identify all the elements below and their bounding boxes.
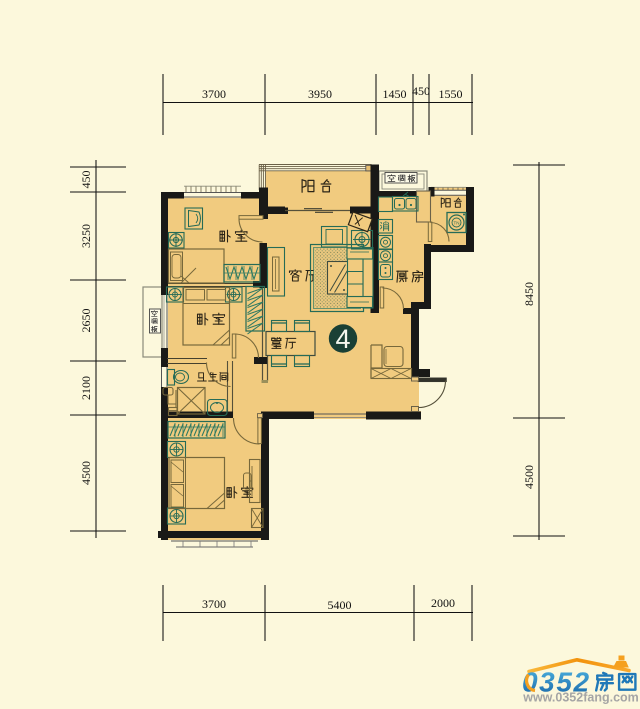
svg-text:3250: 3250 [79, 224, 93, 248]
svg-text:3700: 3700 [202, 87, 226, 101]
svg-text:2000: 2000 [431, 596, 455, 610]
svg-text:1550: 1550 [439, 87, 463, 101]
svg-text:4: 4 [335, 324, 350, 354]
svg-text:4500: 4500 [79, 461, 93, 485]
svg-text:1450: 1450 [383, 87, 407, 101]
svg-text:2650: 2650 [79, 309, 93, 333]
svg-text:2100: 2100 [79, 376, 93, 400]
svg-text:www.0352fang.com: www.0352fang.com [522, 691, 639, 705]
svg-text:3950: 3950 [308, 87, 332, 101]
svg-text:TN: TN [454, 221, 460, 226]
svg-text:450: 450 [79, 171, 93, 189]
svg-text:3700: 3700 [202, 597, 226, 611]
svg-text:450: 450 [412, 84, 430, 98]
svg-text:8450: 8450 [522, 282, 536, 306]
svg-text:4500: 4500 [522, 465, 536, 489]
svg-text:5400: 5400 [328, 598, 352, 612]
